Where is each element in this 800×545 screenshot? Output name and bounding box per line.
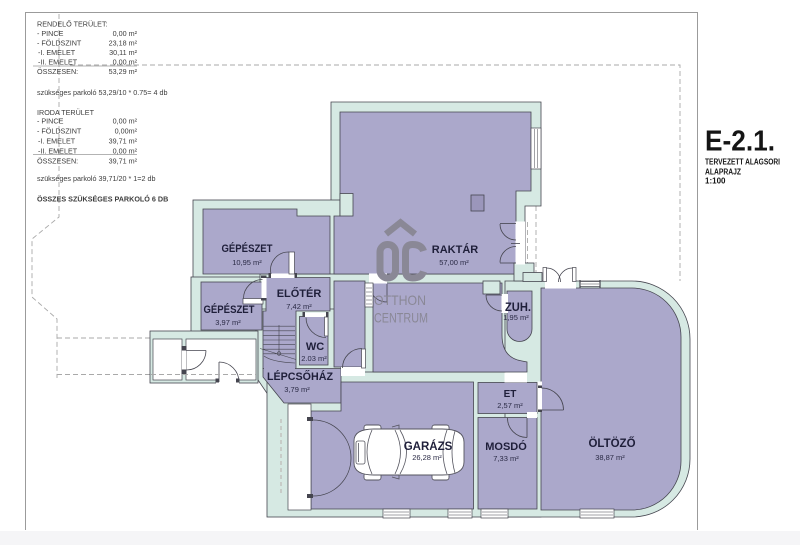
svg-text:ÖSSZESEN:: ÖSSZESEN:	[37, 67, 78, 76]
svg-text:CENTRUM: CENTRUM	[374, 310, 428, 326]
svg-text:39,71 m²: 39,71 m²	[109, 157, 138, 166]
svg-text:OTTHON: OTTHON	[374, 292, 426, 308]
svg-text:0,00 m²: 0,00 m²	[113, 58, 138, 67]
svg-text:53,29 m²: 53,29 m²	[109, 67, 138, 76]
svg-text:3,79 m²: 3,79 m²	[284, 385, 310, 394]
svg-text:0,00 m²: 0,00 m²	[113, 117, 138, 126]
svg-text:10,95 m²: 10,95 m²	[232, 258, 262, 267]
svg-text:ÖSSZES SZÜKSÉGES PARKOLÓ 6 DB: ÖSSZES SZÜKSÉGES PARKOLÓ 6 DB	[37, 195, 168, 204]
svg-text:0,00 m²: 0,00 m²	[113, 147, 138, 156]
svg-text:ET: ET	[504, 389, 517, 400]
svg-text:2,57 m²: 2,57 m²	[497, 401, 523, 410]
svg-text:- FÖLDSZINT: - FÖLDSZINT	[37, 39, 82, 48]
svg-text:WC: WC	[306, 341, 324, 353]
svg-text:ÖLTÖZŐ: ÖLTÖZŐ	[588, 437, 635, 450]
svg-text:GÉPÉSZET: GÉPÉSZET	[204, 303, 255, 316]
svg-text:RENDELŐ TERÜLET:: RENDELŐ TERÜLET:	[37, 20, 108, 29]
svg-text:0,00m²: 0,00m²	[115, 127, 138, 136]
svg-text:-I. EMELET: -I. EMELET	[38, 137, 76, 146]
svg-text:-II. EMELET: -II. EMELET	[38, 58, 78, 67]
svg-text:23,18 m²: 23,18 m²	[109, 39, 138, 48]
svg-text:1,95 m²: 1,95 m²	[503, 313, 529, 322]
svg-text:0,00 m²: 0,00 m²	[113, 29, 138, 38]
svg-text:2.03 m²: 2.03 m²	[301, 354, 327, 363]
svg-text:- FÖLDSZINT: - FÖLDSZINT	[37, 127, 82, 136]
svg-text:szükséges parkoló 53,29/10 * 0: szükséges parkoló 53,29/10 * 0.75= 4 db	[37, 88, 167, 97]
svg-text:GÉPÉSZET: GÉPÉSZET	[222, 242, 273, 255]
svg-text:38,87 m²: 38,87 m²	[595, 453, 625, 462]
svg-text:RAKTÁR: RAKTÁR	[432, 243, 478, 256]
svg-text:- PINCE: - PINCE	[37, 29, 64, 38]
svg-text:TERVEZETT ALAGSORI: TERVEZETT ALAGSORI	[705, 158, 780, 167]
svg-text:-I. EMELET: -I. EMELET	[38, 48, 76, 57]
svg-text:- PINCE: - PINCE	[37, 117, 64, 126]
svg-text:szükséges parkoló 39,71/20 * 1: szükséges parkoló 39,71/20 * 1=2 db	[37, 174, 155, 183]
svg-text:GARÁZS: GARÁZS	[404, 440, 453, 453]
svg-text:ÖSSZESEN:: ÖSSZESEN:	[37, 157, 78, 166]
svg-text:MOSDÓ: MOSDÓ	[485, 440, 527, 453]
svg-text:30,11 m²: 30,11 m²	[109, 48, 137, 57]
svg-text:LÉPCSŐHÁZ: LÉPCSŐHÁZ	[267, 370, 333, 383]
svg-text:57,00 m²: 57,00 m²	[439, 258, 469, 267]
svg-text:ALAPRAJZ: ALAPRAJZ	[705, 168, 741, 177]
svg-text:7,33 m²: 7,33 m²	[493, 454, 519, 463]
svg-text:7,42 m²: 7,42 m²	[286, 302, 312, 311]
svg-text:E-2.1.: E-2.1.	[705, 126, 775, 158]
svg-text:3,97 m²: 3,97 m²	[215, 318, 241, 327]
svg-text:26,28 m²: 26,28 m²	[412, 453, 442, 462]
svg-text:-II. EMELET: -II. EMELET	[38, 147, 78, 156]
svg-text:39,71 m²: 39,71 m²	[109, 137, 138, 146]
svg-text:ELŐTÉR: ELŐTÉR	[277, 287, 322, 300]
svg-text:1:100: 1:100	[705, 177, 726, 186]
